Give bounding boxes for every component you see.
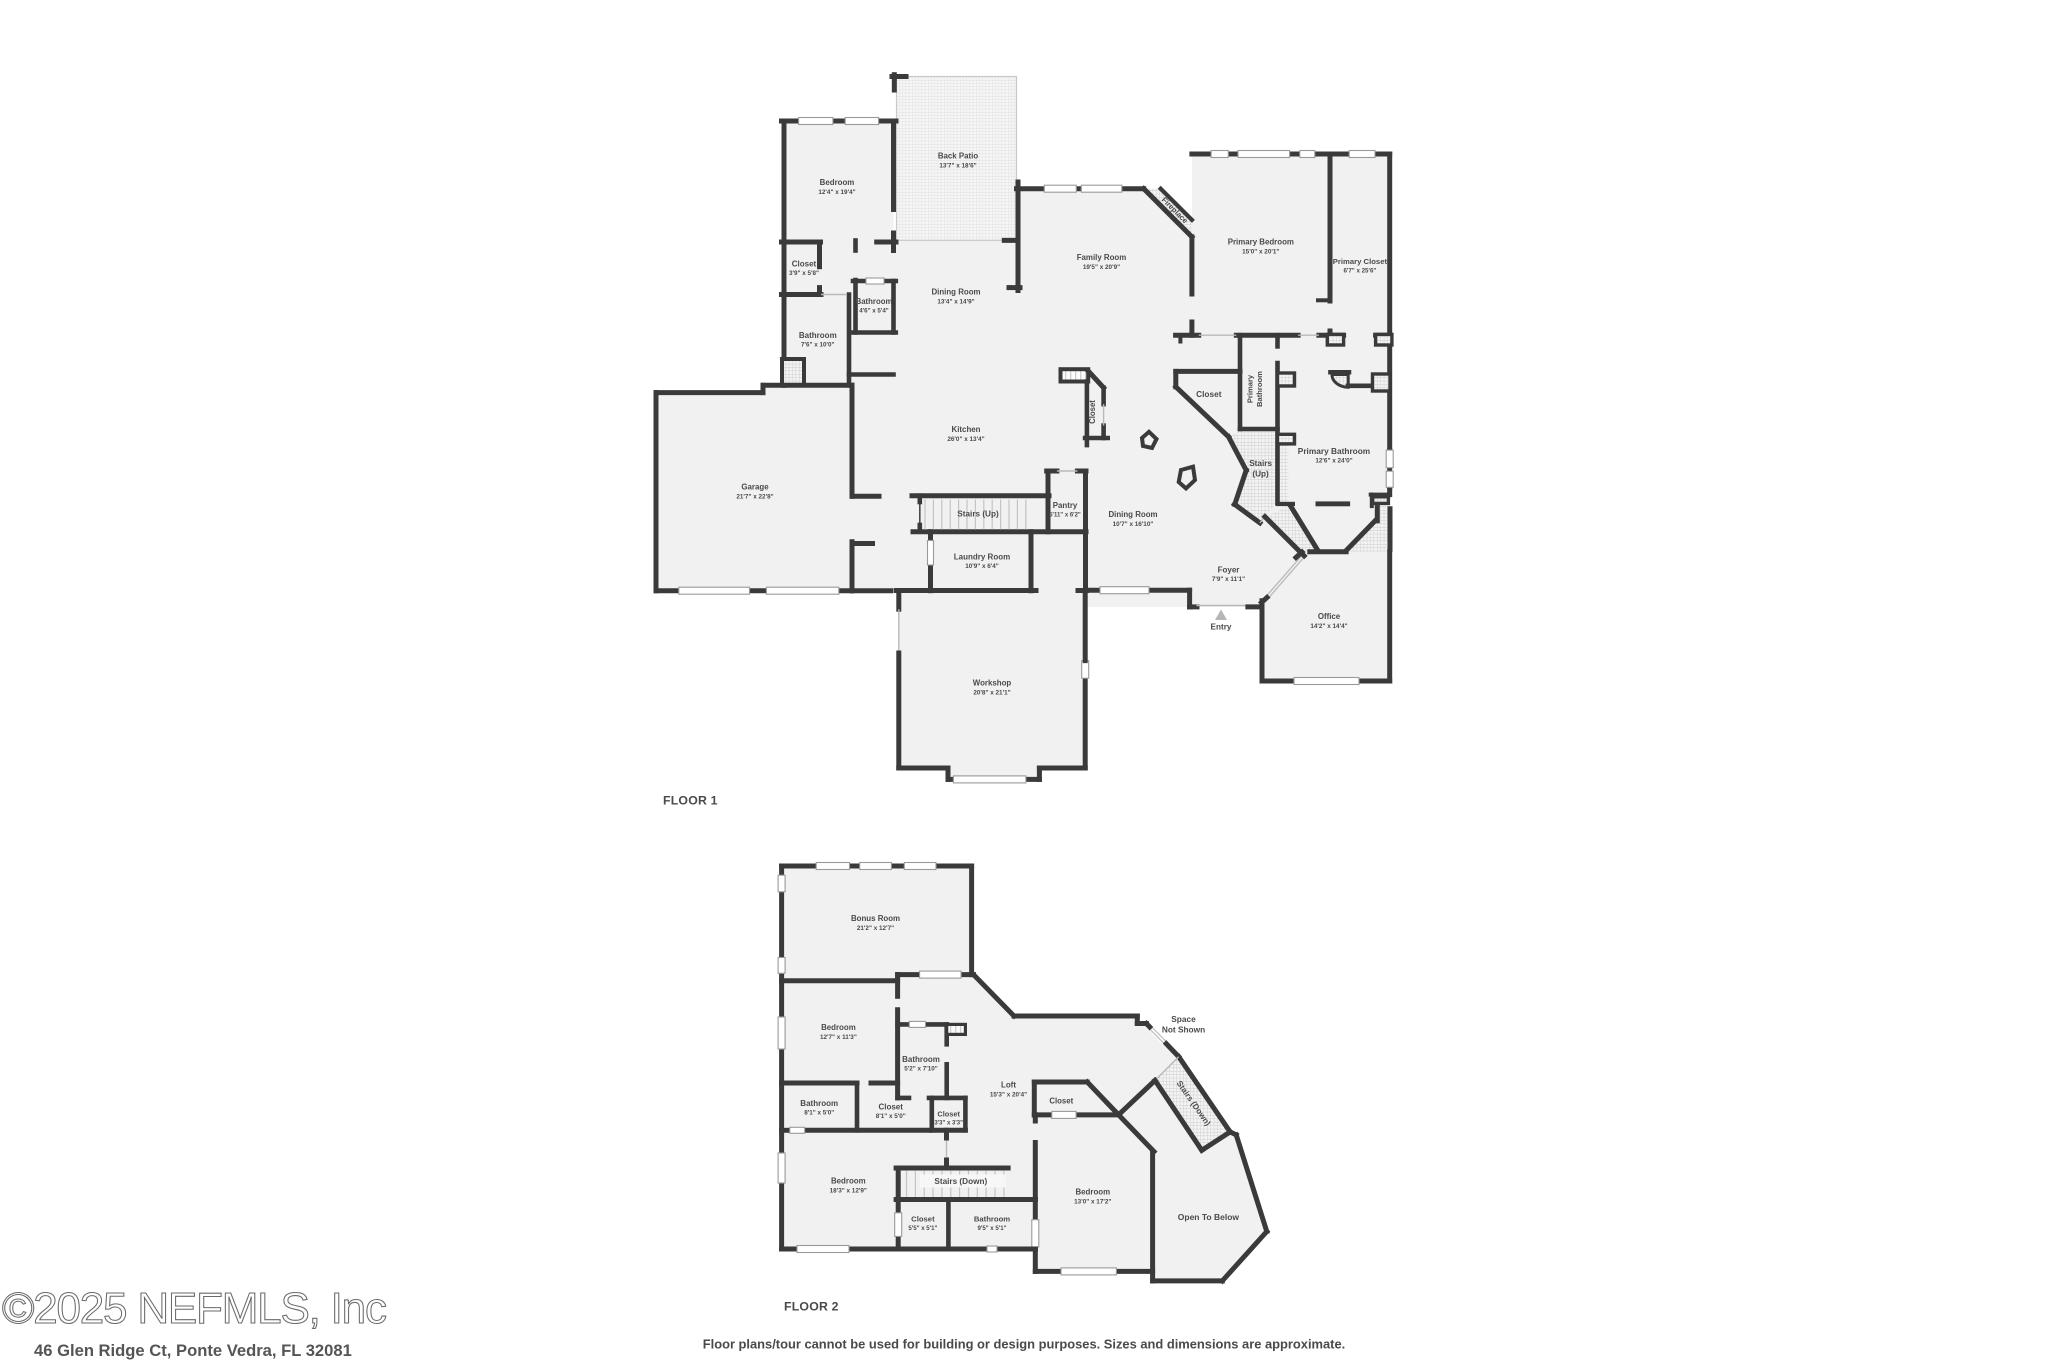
svg-text:Closet: Closet: [1196, 389, 1222, 399]
svg-text:Bathroom: Bathroom: [1255, 371, 1264, 407]
svg-text:Bathroom: Bathroom: [800, 1099, 838, 1108]
svg-text:5'5" x 5'1": 5'5" x 5'1": [908, 1225, 937, 1232]
svg-text:Kitchen: Kitchen: [952, 425, 981, 434]
svg-text:13'4" x 14'9": 13'4" x 14'9": [937, 299, 974, 306]
svg-text:Bonus Room: Bonus Room: [851, 914, 900, 923]
svg-text:Closet: Closet: [1088, 400, 1097, 424]
svg-text:Bedroom: Bedroom: [821, 1023, 856, 1032]
svg-text:19'5" x 20'9": 19'5" x 20'9": [1083, 264, 1120, 271]
svg-text:Dining Room: Dining Room: [1108, 510, 1157, 519]
svg-text:Closet: Closet: [911, 1215, 935, 1224]
svg-text:Dining Room: Dining Room: [931, 288, 980, 297]
svg-text:FLOOR 1: FLOOR 1: [663, 794, 718, 808]
svg-text:10'7" x 16'10": 10'7" x 16'10": [1113, 521, 1154, 528]
svg-text:Laundry Room: Laundry Room: [954, 553, 1010, 562]
svg-text:Bathroom: Bathroom: [902, 1055, 940, 1064]
svg-text:5'11" x 6'2": 5'11" x 6'2": [1049, 513, 1081, 519]
svg-text:Foyer: Foyer: [1218, 566, 1240, 575]
svg-text:3'9" x 5'8": 3'9" x 5'8": [789, 270, 819, 277]
svg-text:10'9" x 6'4": 10'9" x 6'4": [965, 563, 998, 570]
svg-text:12'7" x 11'3": 12'7" x 11'3": [820, 1034, 857, 1041]
svg-text:Bathroom: Bathroom: [799, 331, 837, 340]
svg-text:Entry: Entry: [1211, 623, 1232, 632]
svg-text:Stairs: Stairs: [1249, 459, 1272, 468]
svg-text:Floor plans/tour cannot be use: Floor plans/tour cannot be used for buil…: [703, 1337, 1345, 1352]
svg-text:13'7" x 18'6": 13'7" x 18'6": [939, 163, 976, 170]
svg-text:Primary Closet: Primary Closet: [1333, 257, 1388, 266]
svg-text:Family Room: Family Room: [1077, 253, 1127, 262]
svg-text:Closet: Closet: [937, 1110, 960, 1119]
svg-text:12'6" x 24'0": 12'6" x 24'0": [1315, 458, 1352, 465]
svg-text:21'7" x 22'8": 21'7" x 22'8": [736, 494, 773, 501]
svg-text:Garage: Garage: [741, 483, 769, 492]
svg-text:21'2" x 12'7": 21'2" x 12'7": [857, 925, 894, 932]
svg-text:Primary Bedroom: Primary Bedroom: [1228, 238, 1294, 247]
svg-text:14'2" x 14'4": 14'2" x 14'4": [1310, 623, 1347, 630]
svg-text:Back Patio: Back Patio: [938, 152, 979, 161]
svg-text:6'7" x 25'6": 6'7" x 25'6": [1343, 268, 1376, 275]
svg-text:Primary Bathroom: Primary Bathroom: [1298, 446, 1370, 456]
svg-text:13'0" x 17'2": 13'0" x 17'2": [1074, 1199, 1111, 1206]
svg-text:7'9" x 11'1": 7'9" x 11'1": [1212, 576, 1245, 583]
svg-text:Open To Below: Open To Below: [1178, 1212, 1240, 1222]
svg-text:Pantry: Pantry: [1053, 501, 1078, 510]
svg-text:4'6" x 5'4": 4'6" x 5'4": [859, 308, 889, 315]
svg-text:Closet: Closet: [1049, 1097, 1073, 1106]
svg-text:7'6" x 10'0": 7'6" x 10'0": [801, 342, 834, 349]
svg-text:Bathroom: Bathroom: [856, 297, 893, 306]
svg-text:26'0" x 13'4": 26'0" x 13'4": [947, 436, 984, 443]
svg-text:9'5" x 5'1": 9'5" x 5'1": [977, 1225, 1006, 1232]
svg-text:Bathroom: Bathroom: [974, 1215, 1010, 1224]
svg-text:Space: Space: [1171, 1014, 1196, 1024]
svg-text:Closet: Closet: [878, 1103, 903, 1112]
svg-text:Not Shown: Not Shown: [1162, 1025, 1205, 1035]
svg-text:18'3" x 12'9": 18'3" x 12'9": [830, 1188, 867, 1195]
svg-text:Bedroom: Bedroom: [820, 178, 855, 187]
svg-text:Bedroom: Bedroom: [1075, 1188, 1110, 1197]
svg-text:15'3" x 20'4": 15'3" x 20'4": [990, 1092, 1027, 1099]
svg-text:Loft: Loft: [1001, 1081, 1016, 1090]
svg-text:12'4" x 19'4": 12'4" x 19'4": [818, 189, 855, 196]
svg-text:Office: Office: [1318, 612, 1341, 621]
svg-text:8'1" x 5'0": 8'1" x 5'0": [804, 1110, 834, 1117]
svg-text:Closet: Closet: [792, 260, 817, 269]
svg-text:(Up): (Up): [1252, 470, 1269, 479]
svg-text:15'0" x 20'1": 15'0" x 20'1": [1242, 249, 1279, 256]
svg-text:20'8" x 21'1": 20'8" x 21'1": [973, 690, 1010, 697]
svg-text:©2025 NEFMLS, Inc: ©2025 NEFMLS, Inc: [2, 1284, 386, 1333]
svg-text:Workshop: Workshop: [973, 679, 1012, 688]
svg-text:Stairs (Down): Stairs (Down): [934, 1177, 987, 1186]
svg-text:5'2" x 7'10": 5'2" x 7'10": [904, 1066, 937, 1073]
svg-text:Primary: Primary: [1246, 374, 1255, 403]
svg-text:Bedroom: Bedroom: [831, 1177, 866, 1186]
svg-text:Stairs (Up): Stairs (Up): [957, 510, 999, 519]
svg-text:3'3" x 3'3": 3'3" x 3'3": [934, 1121, 963, 1127]
svg-text:46 Glen Ridge Ct, Ponte Vedra,: 46 Glen Ridge Ct, Ponte Vedra, FL 32081: [34, 1341, 352, 1360]
svg-text:FLOOR 2: FLOOR 2: [784, 1300, 839, 1314]
svg-text:8'1" x 5'0": 8'1" x 5'0": [876, 1113, 906, 1120]
